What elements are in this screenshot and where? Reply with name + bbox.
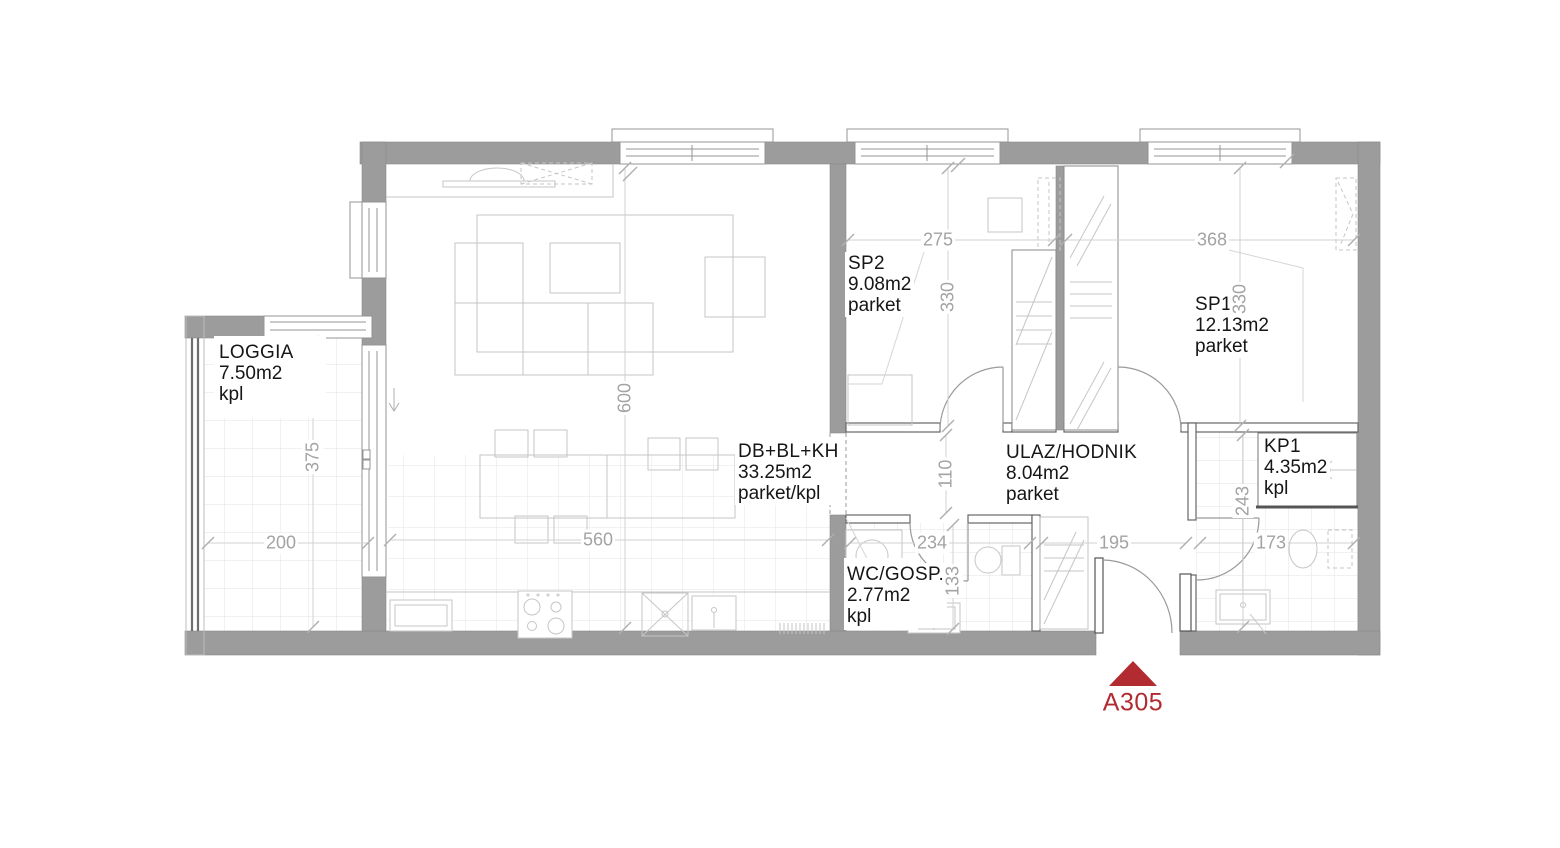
- dim-hall-width: 195: [1097, 533, 1131, 554]
- room-area: 33.25m2: [738, 462, 839, 483]
- room-floor: parket: [1006, 484, 1137, 505]
- room-floor: parket: [848, 295, 911, 316]
- room-floor: kpl: [1264, 478, 1327, 499]
- sp1-furniture: [1336, 178, 1356, 250]
- room-area: 7.50m2: [219, 363, 294, 384]
- dim-loggia-depth: 375: [303, 440, 324, 474]
- room-label-living: DB+BL+KH 33.25m2 parket/kpl: [735, 440, 842, 505]
- dim-sp1-depth: 330: [1230, 282, 1251, 316]
- dim-passage-width: 110: [936, 458, 957, 491]
- room-name: KP1: [1264, 436, 1327, 457]
- room-area: 2.77m2: [847, 585, 944, 606]
- wardrobes: [1012, 166, 1118, 430]
- room-name: WC/GOSP.: [847, 564, 944, 585]
- floor-plan-canvas: LOGGIA 7.50m2 kpl DB+BL+KH 33.25m2 parke…: [0, 0, 1560, 848]
- room-floor: parket: [1195, 336, 1269, 357]
- slide-direction-arrow: [389, 388, 399, 411]
- room-label-hodnik: ULAZ/HODNIK 8.04m2 parket: [1003, 441, 1140, 506]
- room-label-sp2: SP2 9.08m2 parket: [845, 252, 914, 317]
- room-floor: parket/kpl: [738, 483, 839, 504]
- room-name: SP2: [848, 253, 911, 274]
- room-area: 4.35m2: [1264, 457, 1327, 478]
- dim-kp1-depth: 243: [1233, 484, 1254, 518]
- dim-sp2-width: 275: [921, 230, 955, 251]
- dim-living-width: 560: [581, 530, 615, 551]
- room-label-loggia: LOGGIA 7.50m2 kpl: [216, 341, 297, 406]
- room-label-kp1: KP1 4.35m2 kpl: [1261, 435, 1330, 500]
- dim-wc-width: 234: [915, 533, 949, 554]
- floor-plan-drawing: [0, 0, 1560, 848]
- room-area: 8.04m2: [1006, 463, 1137, 484]
- room-label-wc: WC/GOSP. 2.77m2 kpl: [844, 563, 947, 628]
- room-name: DB+BL+KH: [738, 441, 839, 462]
- room-name: LOGGIA: [219, 342, 294, 363]
- unit-number: A305: [1103, 689, 1163, 718]
- dim-wc-depth: 133: [943, 564, 964, 598]
- dim-living-depth: 600: [615, 381, 636, 415]
- dim-sp2-depth: 330: [938, 280, 959, 314]
- dim-kp1-width: 173: [1254, 533, 1288, 554]
- room-area: 12.13m2: [1195, 315, 1269, 336]
- hall-cabinet: [1040, 517, 1088, 629]
- dim-sp1-width: 368: [1195, 230, 1229, 251]
- room-name: ULAZ/HODNIK: [1006, 442, 1137, 463]
- room-area: 9.08m2: [848, 274, 911, 295]
- loggia-railing: [186, 316, 204, 655]
- dim-loggia-width: 200: [264, 533, 298, 554]
- room-floor: kpl: [219, 384, 294, 405]
- entrance-marker-icon: [1109, 661, 1157, 686]
- room-floor: kpl: [847, 606, 944, 627]
